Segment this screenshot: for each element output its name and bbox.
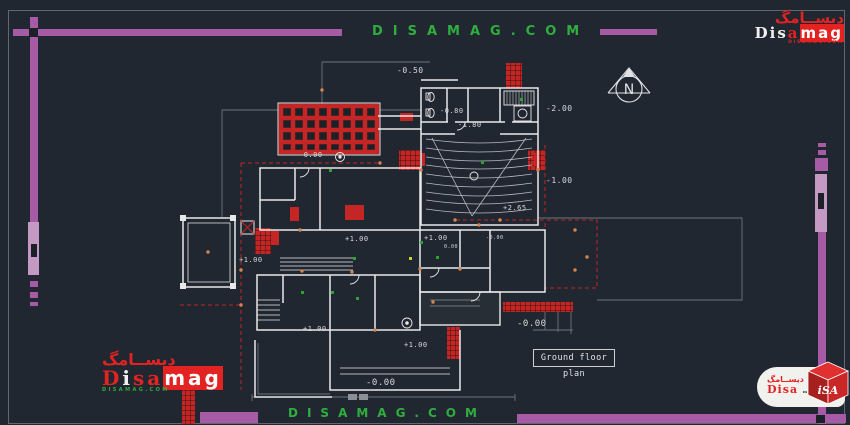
level-annotation: +1.00 — [345, 236, 369, 243]
logo-wordmark: Disamag — [755, 26, 844, 41]
level-annotation: -0.80 — [440, 108, 464, 115]
border-bar-top — [13, 29, 342, 36]
border-cross-square — [29, 28, 38, 37]
level-annotation: +1.00 — [239, 257, 263, 264]
level-annotation: -0.00 — [299, 152, 323, 159]
level-annotation: -0.00 — [517, 320, 547, 329]
border-cross-square-bottom — [816, 415, 825, 423]
drawing-title: Ground floor plan — [533, 349, 615, 367]
level-annotation: +2.65 — [503, 205, 527, 212]
level-annotation: +1.00 — [303, 326, 327, 333]
level-annotation: -0.00 — [366, 379, 396, 388]
border-dash — [30, 281, 38, 287]
cad-drawing-screenshot: N -0.50-0.80-1.80-2.00-1.00+2.65+1.00+1.… — [0, 0, 850, 425]
isa-cube-icon: iSA — [806, 356, 850, 412]
border-bar-left-slot — [31, 244, 37, 257]
logo-wordmark: Disamag — [102, 368, 223, 388]
border-dash — [30, 302, 38, 306]
level-annotation: -0.50 — [397, 67, 424, 75]
border-bar-bottom-left — [200, 412, 258, 423]
level-annotation: -2.00 — [546, 105, 573, 113]
border-bar-bottom — [517, 414, 846, 423]
border-dash — [818, 143, 826, 147]
disamag-logo-bottom-left: دیســامگ Disamag DISAMAG.COM — [102, 352, 223, 393]
level-annotation: +1.00 — [424, 235, 448, 242]
watermark-top: DISAMAG.COM — [372, 24, 589, 39]
level-annotation: +1.00 — [404, 342, 428, 349]
border-dash — [818, 150, 826, 155]
border-bar-left — [30, 17, 38, 222]
border-bar-right-slot — [818, 193, 824, 209]
level-annotation: -1.00 — [546, 177, 573, 185]
level-annotation: -0.00 — [486, 236, 504, 241]
border-square-right — [815, 158, 828, 171]
level-annotation: -1.80 — [458, 122, 482, 129]
border-dash — [30, 292, 38, 298]
border-bar-top-right — [600, 29, 657, 35]
disamag-logo-top-right: دیســامگ Disamag DISAMAG.COM — [755, 11, 844, 46]
watermark-bottom: DISAMAG.COM — [288, 406, 486, 420]
svg-text:iSA: iSA — [818, 384, 839, 397]
logo-mag-suffix: mag — [163, 366, 223, 390]
level-annotation: 0.00 — [444, 245, 458, 250]
